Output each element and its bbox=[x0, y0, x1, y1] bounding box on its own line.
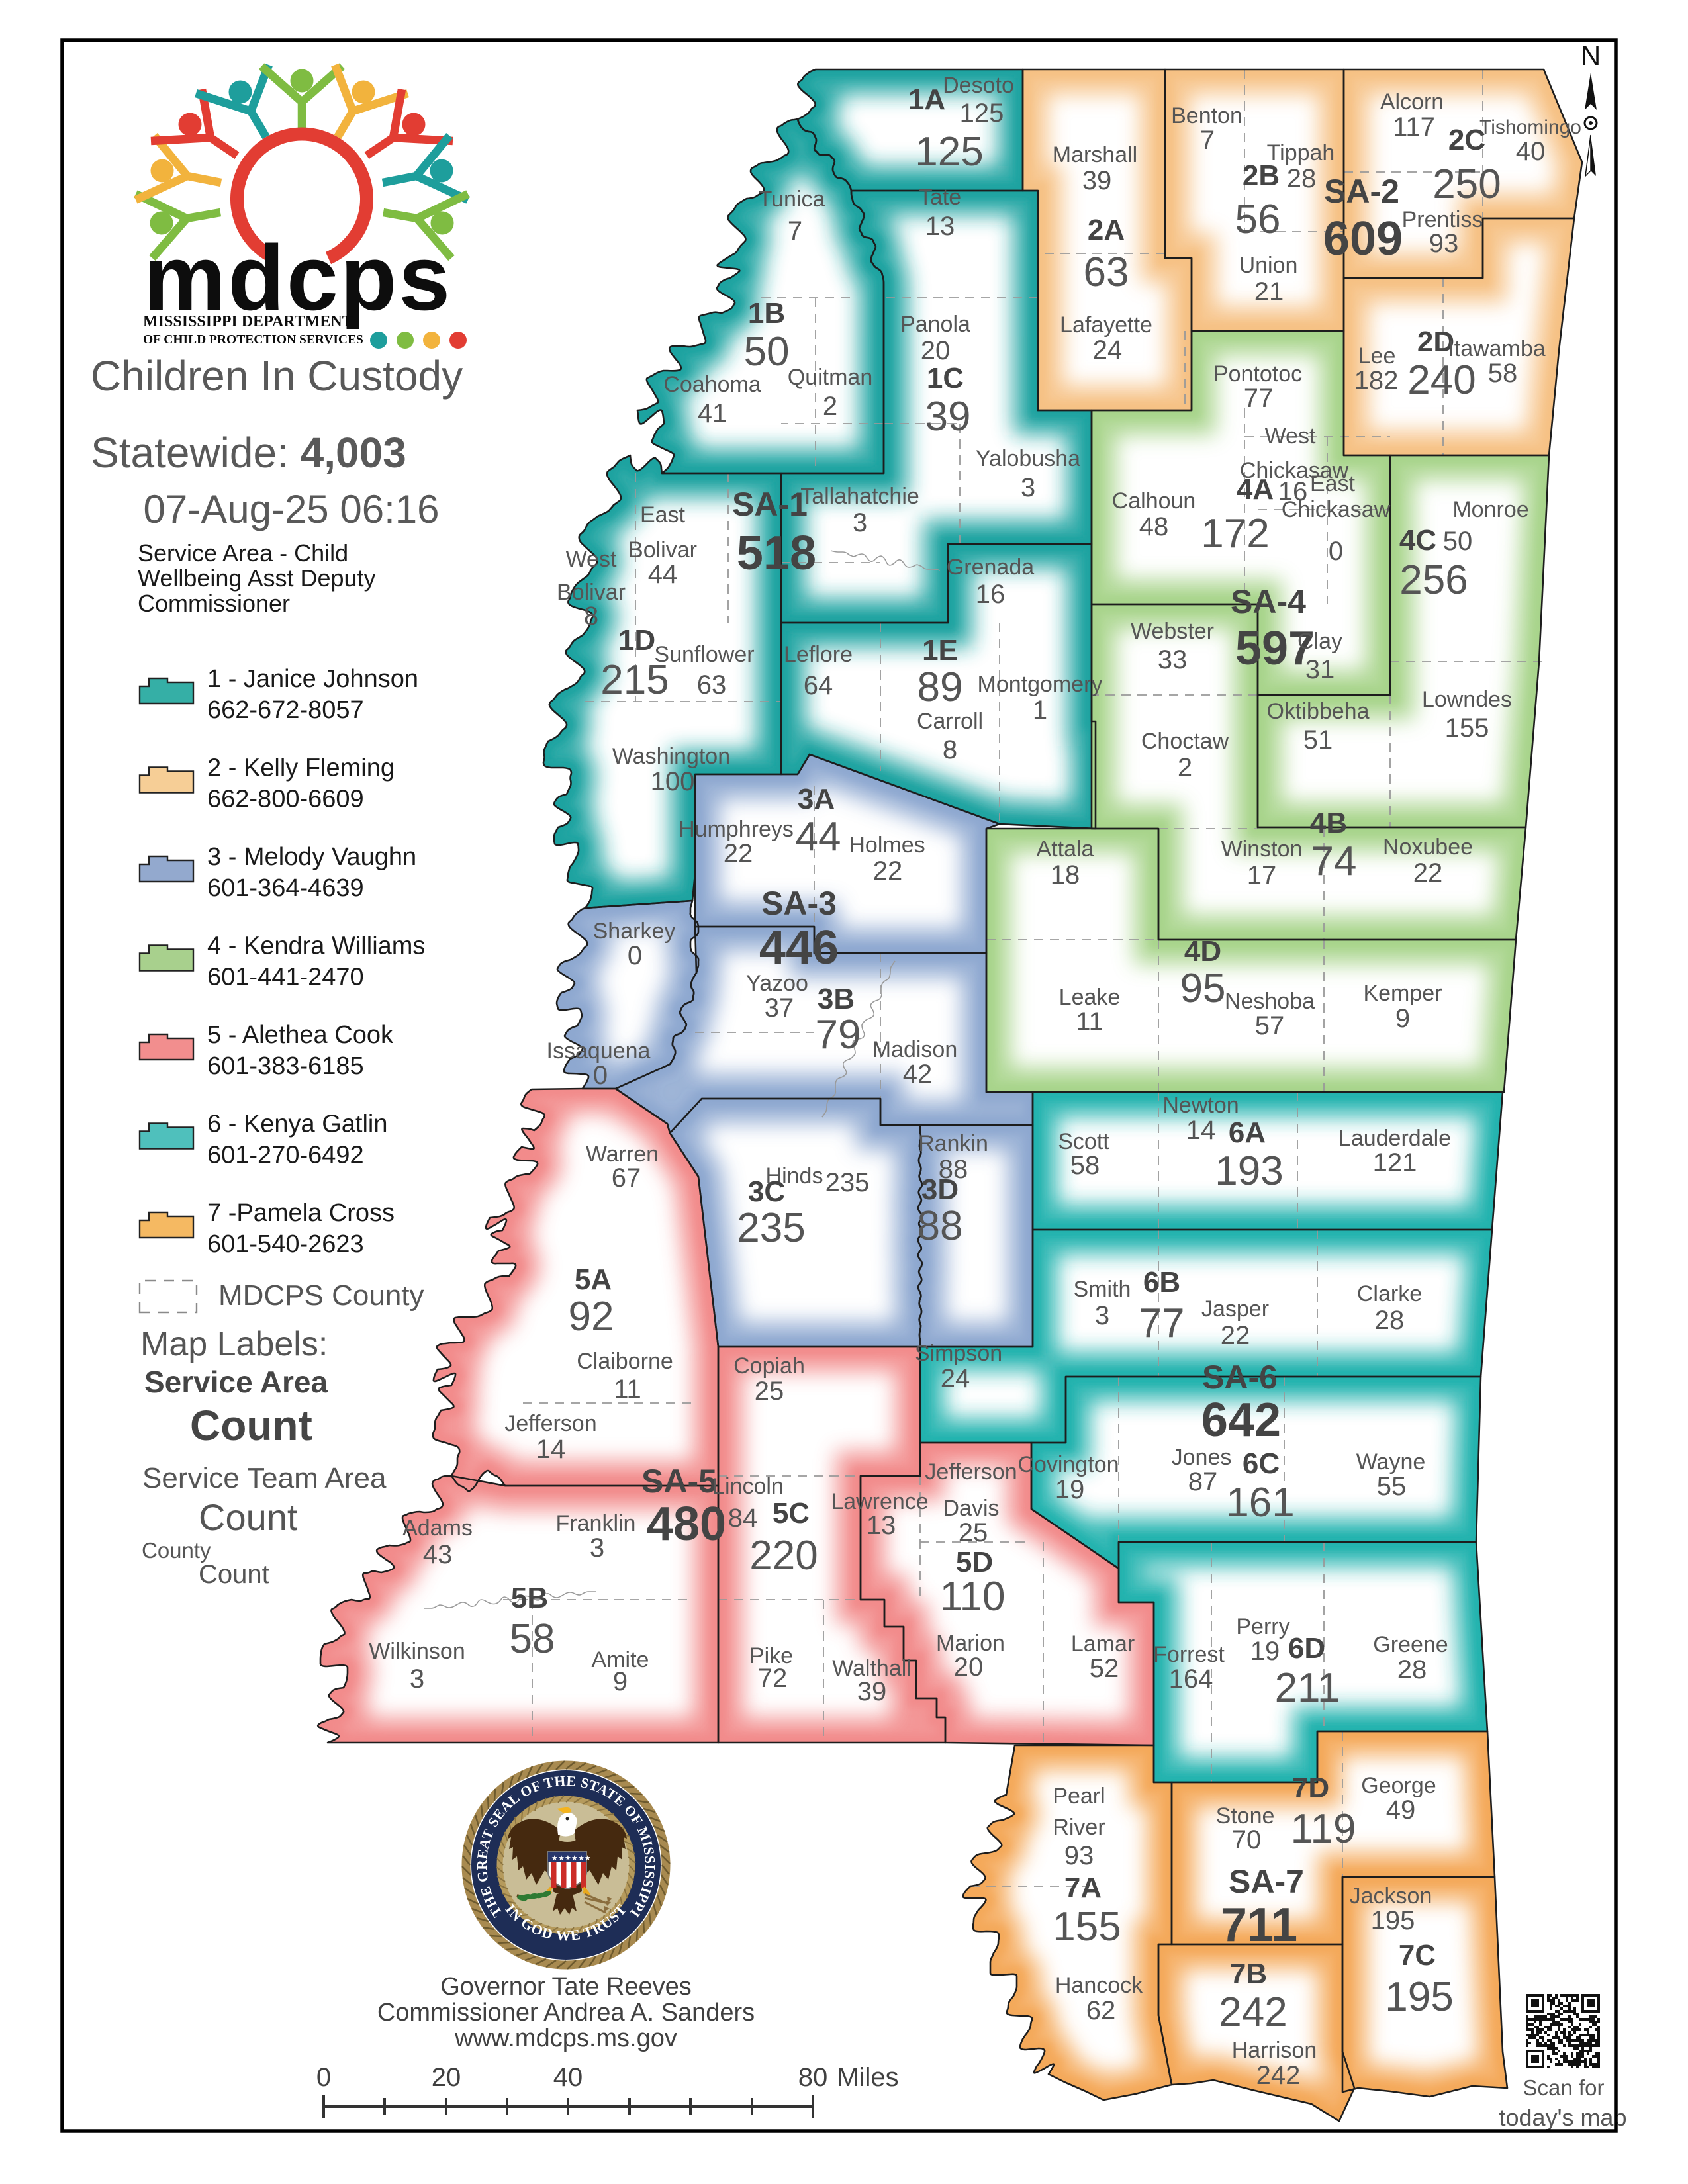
svg-text:9: 9 bbox=[613, 1667, 628, 1696]
svg-text:Tunica: Tunica bbox=[759, 187, 825, 212]
svg-text:Neshoba: Neshoba bbox=[1225, 989, 1315, 1014]
svg-text:Monroe: Monroe bbox=[1452, 497, 1528, 522]
svg-text:8: 8 bbox=[584, 602, 598, 631]
svg-text:1D: 1D bbox=[618, 624, 655, 657]
svg-text:601-441-2470: 601-441-2470 bbox=[207, 964, 364, 991]
svg-text:20: 20 bbox=[432, 2063, 461, 2092]
svg-text:★: ★ bbox=[558, 1854, 565, 1862]
svg-text:7C: 7C bbox=[1399, 1939, 1436, 1972]
svg-text:Coahoma: Coahoma bbox=[663, 372, 761, 397]
svg-text:119: 119 bbox=[1291, 1806, 1356, 1852]
svg-text:Benton: Benton bbox=[1171, 103, 1243, 128]
svg-text:Clarke: Clarke bbox=[1357, 1281, 1422, 1306]
svg-text:Lee: Lee bbox=[1358, 343, 1396, 369]
svg-text:11: 11 bbox=[614, 1375, 641, 1404]
svg-text:9: 9 bbox=[1395, 1004, 1410, 1033]
svg-text:250: 250 bbox=[1432, 161, 1501, 207]
svg-text:19: 19 bbox=[1055, 1475, 1085, 1504]
svg-text:33: 33 bbox=[1158, 645, 1188, 674]
svg-text:43: 43 bbox=[423, 1540, 453, 1569]
svg-text:19: 19 bbox=[1250, 1637, 1280, 1666]
svg-text:16: 16 bbox=[976, 580, 1006, 609]
svg-text:Commissioner Andrea A. Sanders: Commissioner Andrea A. Sanders bbox=[377, 1999, 755, 2026]
svg-text:Davis: Davis bbox=[943, 1496, 999, 1521]
svg-text:220: 220 bbox=[749, 1533, 818, 1578]
svg-text:155: 155 bbox=[1053, 1904, 1121, 1950]
svg-text:N: N bbox=[1581, 40, 1601, 71]
svg-text:Sharkey: Sharkey bbox=[593, 919, 676, 944]
svg-text:Perry: Perry bbox=[1236, 1614, 1289, 1639]
svg-text:Hancock: Hancock bbox=[1055, 1973, 1143, 1998]
svg-text:25: 25 bbox=[755, 1377, 784, 1406]
svg-text:63: 63 bbox=[1084, 250, 1129, 295]
svg-text:0: 0 bbox=[316, 2063, 331, 2092]
svg-text:Service Area: Service Area bbox=[144, 1365, 328, 1399]
svg-text:711: 711 bbox=[1221, 1899, 1297, 1952]
svg-text:235: 235 bbox=[825, 1168, 870, 1197]
svg-text:Winston: Winston bbox=[1221, 837, 1303, 862]
svg-text:49: 49 bbox=[1386, 1796, 1416, 1825]
svg-text:11: 11 bbox=[1076, 1007, 1103, 1036]
svg-text:Scan for: Scan for bbox=[1523, 2075, 1605, 2100]
svg-text:195: 195 bbox=[1385, 1974, 1453, 2020]
svg-text:Union: Union bbox=[1239, 253, 1298, 278]
svg-text:110: 110 bbox=[940, 1574, 1006, 1619]
svg-text:Sunflower: Sunflower bbox=[654, 642, 754, 667]
svg-text:07-Aug-25 06:16: 07-Aug-25 06:16 bbox=[143, 487, 439, 531]
svg-text:5B: 5B bbox=[511, 1582, 548, 1614]
svg-text:★: ★ bbox=[565, 1854, 571, 1862]
svg-text:Adams: Adams bbox=[402, 1516, 473, 1541]
svg-text:Smith: Smith bbox=[1074, 1277, 1131, 1302]
svg-text:242: 242 bbox=[1256, 2061, 1301, 2090]
svg-text:Kemper: Kemper bbox=[1363, 981, 1442, 1006]
svg-text:SA-3: SA-3 bbox=[761, 885, 837, 922]
svg-text:Washington: Washington bbox=[612, 744, 730, 769]
svg-text:3B: 3B bbox=[818, 983, 855, 1015]
svg-text:74: 74 bbox=[1311, 839, 1357, 884]
svg-text:Jones: Jones bbox=[1172, 1445, 1232, 1470]
svg-text:28: 28 bbox=[1287, 164, 1317, 193]
svg-text:193: 193 bbox=[1215, 1148, 1283, 1194]
svg-text:East: East bbox=[1310, 471, 1356, 496]
svg-text:Governor Tate Reeves: Governor Tate Reeves bbox=[440, 1973, 692, 2001]
svg-text:662-672-8057: 662-672-8057 bbox=[207, 696, 364, 724]
svg-text:62: 62 bbox=[1086, 1996, 1116, 2025]
svg-text:Quitman: Quitman bbox=[788, 365, 873, 390]
svg-text:Franklin: Franklin bbox=[556, 1511, 636, 1536]
svg-text:★: ★ bbox=[551, 1854, 558, 1862]
svg-text:Chickasaw: Chickasaw bbox=[1282, 497, 1391, 522]
svg-text:25: 25 bbox=[959, 1518, 988, 1547]
svg-text:today's map: today's map bbox=[1499, 2104, 1627, 2131]
svg-text:84: 84 bbox=[728, 1504, 758, 1533]
svg-text:MDCPS County: MDCPS County bbox=[218, 1279, 424, 1312]
svg-text:3: 3 bbox=[410, 1664, 424, 1694]
svg-text:39: 39 bbox=[857, 1677, 887, 1706]
svg-text:Lamar: Lamar bbox=[1071, 1631, 1135, 1657]
svg-text:601-383-6185: 601-383-6185 bbox=[207, 1052, 364, 1080]
svg-text:Tate: Tate bbox=[919, 185, 961, 210]
svg-text:Jefferson: Jefferson bbox=[504, 1411, 596, 1436]
svg-text:41: 41 bbox=[698, 399, 727, 428]
svg-text:22: 22 bbox=[1413, 858, 1443, 887]
svg-text:240: 240 bbox=[1407, 357, 1476, 403]
svg-text:20: 20 bbox=[921, 336, 951, 365]
svg-text:446: 446 bbox=[759, 921, 839, 974]
svg-text:Jasper: Jasper bbox=[1201, 1297, 1269, 1322]
svg-text:235: 235 bbox=[737, 1205, 805, 1251]
svg-text:39: 39 bbox=[925, 394, 971, 439]
svg-text:1B: 1B bbox=[748, 297, 785, 330]
svg-text:SA-4: SA-4 bbox=[1231, 583, 1306, 620]
svg-text:SA-6: SA-6 bbox=[1202, 1359, 1278, 1396]
svg-text:125: 125 bbox=[915, 129, 983, 175]
svg-text:58: 58 bbox=[1070, 1151, 1100, 1180]
svg-text:0: 0 bbox=[628, 941, 642, 970]
svg-text:West: West bbox=[566, 547, 617, 572]
svg-text:40: 40 bbox=[553, 2063, 583, 2092]
svg-text:6A: 6A bbox=[1229, 1116, 1266, 1149]
svg-text:OF CHILD PROTECTION SERVICES: OF CHILD PROTECTION SERVICES bbox=[143, 333, 363, 347]
svg-text:93: 93 bbox=[1429, 229, 1459, 258]
svg-text:28: 28 bbox=[1375, 1306, 1405, 1335]
svg-text:Service Team Area: Service Team Area bbox=[142, 1462, 387, 1494]
svg-text:Grenada: Grenada bbox=[947, 555, 1034, 580]
svg-text:Bolivar: Bolivar bbox=[628, 537, 697, 563]
svg-text:2 - Kelly Fleming: 2 - Kelly Fleming bbox=[207, 754, 395, 782]
svg-text:0: 0 bbox=[593, 1061, 608, 1090]
svg-text:242: 242 bbox=[1219, 1989, 1287, 2035]
svg-text:44: 44 bbox=[648, 560, 678, 589]
svg-text:58: 58 bbox=[1488, 359, 1518, 388]
svg-text:MISSISSIPPI DEPARTMENT: MISSISSIPPI DEPARTMENT bbox=[143, 313, 353, 330]
svg-text:6 - Kenya Gatlin: 6 - Kenya Gatlin bbox=[207, 1111, 387, 1138]
svg-text:4B: 4B bbox=[1310, 807, 1347, 839]
svg-text:2: 2 bbox=[823, 392, 837, 421]
svg-text:4C: 4C bbox=[1399, 524, 1436, 557]
svg-text:Attala: Attala bbox=[1037, 837, 1094, 862]
svg-text:182: 182 bbox=[1354, 366, 1399, 395]
svg-text:63: 63 bbox=[697, 670, 727, 700]
svg-text:Leake: Leake bbox=[1059, 985, 1121, 1010]
svg-text:Leflore: Leflore bbox=[784, 642, 853, 667]
svg-text:77: 77 bbox=[1244, 384, 1274, 413]
svg-text:18: 18 bbox=[1051, 860, 1080, 889]
svg-text:3: 3 bbox=[1095, 1301, 1109, 1330]
svg-text:Lafayette: Lafayette bbox=[1060, 312, 1152, 338]
svg-text:3D: 3D bbox=[921, 1173, 959, 1206]
svg-text:44: 44 bbox=[796, 814, 841, 860]
svg-text:51: 51 bbox=[1303, 725, 1333, 754]
svg-text:Rankin: Rankin bbox=[918, 1131, 988, 1156]
svg-text:93: 93 bbox=[1064, 1841, 1094, 1870]
svg-text:★: ★ bbox=[585, 1854, 591, 1862]
svg-text:7 -Pamela Cross: 7 -Pamela Cross bbox=[207, 1199, 395, 1227]
svg-text:Tishomingo: Tishomingo bbox=[1479, 116, 1581, 138]
svg-text:3: 3 bbox=[1021, 473, 1035, 502]
svg-text:Forrest: Forrest bbox=[1153, 1642, 1225, 1667]
svg-text:Statewide: 4,003: Statewide: 4,003 bbox=[91, 429, 406, 477]
svg-text:125: 125 bbox=[960, 99, 1004, 128]
svg-text:SA-5: SA-5 bbox=[641, 1463, 717, 1500]
svg-text:Count: Count bbox=[199, 1496, 298, 1538]
svg-text:Children In Custody: Children In Custody bbox=[91, 352, 463, 400]
svg-text:River: River bbox=[1053, 1815, 1105, 1840]
svg-text:Miles: Miles bbox=[837, 2063, 898, 2092]
svg-text:1: 1 bbox=[1033, 696, 1047, 725]
svg-text:Newton: Newton bbox=[1162, 1093, 1239, 1118]
svg-text:95: 95 bbox=[1180, 966, 1226, 1011]
svg-text:211: 211 bbox=[1275, 1665, 1340, 1711]
svg-text:Wilkinson: Wilkinson bbox=[369, 1639, 465, 1664]
svg-text:37: 37 bbox=[765, 993, 794, 1023]
svg-text:121: 121 bbox=[1373, 1148, 1417, 1177]
svg-text:Commissioner: Commissioner bbox=[138, 590, 290, 617]
svg-text:56: 56 bbox=[1235, 197, 1281, 242]
svg-text:77: 77 bbox=[1139, 1300, 1185, 1346]
svg-text:21: 21 bbox=[1254, 277, 1284, 306]
svg-text:3: 3 bbox=[590, 1533, 604, 1563]
svg-text:Claiborne: Claiborne bbox=[577, 1349, 673, 1374]
svg-text:642: 642 bbox=[1201, 1394, 1281, 1447]
svg-text:Oktibbeha: Oktibbeha bbox=[1267, 699, 1370, 724]
svg-text:3: 3 bbox=[853, 508, 867, 537]
svg-text:Simpson: Simpson bbox=[915, 1341, 1002, 1366]
svg-text:58: 58 bbox=[510, 1616, 555, 1662]
svg-text:2A: 2A bbox=[1088, 214, 1125, 246]
svg-text:5C: 5C bbox=[773, 1497, 810, 1529]
svg-text:72: 72 bbox=[758, 1664, 788, 1693]
svg-text:89: 89 bbox=[917, 664, 963, 710]
svg-text:4A: 4A bbox=[1237, 473, 1274, 506]
svg-text:64: 64 bbox=[804, 671, 833, 700]
svg-text:Count: Count bbox=[199, 1560, 269, 1589]
svg-text:480: 480 bbox=[647, 1498, 726, 1551]
svg-text:31: 31 bbox=[1305, 655, 1335, 684]
svg-text:Copiah: Copiah bbox=[733, 1353, 805, 1379]
svg-text:13: 13 bbox=[925, 212, 955, 241]
svg-text:24: 24 bbox=[941, 1364, 970, 1393]
svg-text:609: 609 bbox=[1323, 212, 1403, 265]
svg-text:5A: 5A bbox=[575, 1263, 612, 1296]
svg-text:6B: 6B bbox=[1143, 1266, 1180, 1298]
svg-text:Calhoun: Calhoun bbox=[1112, 488, 1196, 514]
svg-text:195: 195 bbox=[1371, 1906, 1415, 1935]
svg-text:Panola: Panola bbox=[900, 312, 970, 337]
svg-text:Yazoo: Yazoo bbox=[746, 971, 808, 996]
svg-text:164: 164 bbox=[1169, 1664, 1213, 1694]
svg-text:Tallahatchie: Tallahatchie bbox=[800, 484, 919, 509]
svg-text:Holmes: Holmes bbox=[849, 833, 925, 858]
svg-text:117: 117 bbox=[1393, 113, 1435, 142]
svg-text:55: 55 bbox=[1377, 1472, 1407, 1501]
svg-text:Noxubee: Noxubee bbox=[1383, 835, 1473, 860]
svg-text:80: 80 bbox=[798, 2063, 828, 2092]
svg-text:24: 24 bbox=[1093, 336, 1123, 365]
svg-text:Lauderdale: Lauderdale bbox=[1338, 1126, 1451, 1151]
svg-text:8: 8 bbox=[943, 735, 957, 764]
svg-text:518: 518 bbox=[737, 527, 816, 580]
svg-text:7B: 7B bbox=[1230, 1958, 1267, 1990]
svg-text:79: 79 bbox=[816, 1012, 861, 1058]
svg-text:20: 20 bbox=[954, 1653, 984, 1682]
svg-text:601-364-4639: 601-364-4639 bbox=[207, 874, 364, 902]
svg-text:7A: 7A bbox=[1064, 1872, 1102, 1904]
svg-text:Webster: Webster bbox=[1131, 619, 1214, 644]
svg-text:172: 172 bbox=[1201, 511, 1269, 557]
svg-text:Itawamba: Itawamba bbox=[1448, 336, 1545, 361]
svg-text:87: 87 bbox=[1188, 1467, 1218, 1496]
svg-text:1E: 1E bbox=[922, 634, 958, 666]
svg-text:Yalobusha: Yalobusha bbox=[976, 446, 1080, 471]
svg-text:Choctaw: Choctaw bbox=[1141, 729, 1229, 754]
svg-text:28: 28 bbox=[1397, 1655, 1427, 1684]
svg-text:2: 2 bbox=[1178, 753, 1192, 782]
svg-text:West: West bbox=[1265, 424, 1316, 449]
svg-text:2B: 2B bbox=[1243, 159, 1280, 192]
svg-text:Service Area - Child: Service Area - Child bbox=[138, 539, 348, 567]
svg-text:52: 52 bbox=[1090, 1654, 1119, 1683]
svg-text:Humphreys: Humphreys bbox=[679, 817, 794, 842]
svg-text:17: 17 bbox=[1247, 861, 1277, 890]
svg-text:42: 42 bbox=[903, 1060, 933, 1089]
svg-text:★: ★ bbox=[578, 1854, 585, 1862]
svg-text:Issaquena: Issaquena bbox=[547, 1038, 651, 1064]
svg-text:50: 50 bbox=[1443, 527, 1473, 556]
svg-text:Pearl: Pearl bbox=[1053, 1784, 1105, 1809]
svg-text:Wellbeing Asst Deputy: Wellbeing Asst Deputy bbox=[138, 565, 376, 592]
svg-text:161: 161 bbox=[1226, 1480, 1294, 1525]
svg-text:1 - Janice Johnson: 1 - Janice Johnson bbox=[207, 665, 418, 693]
svg-text:3C: 3C bbox=[748, 1175, 785, 1208]
svg-text:Alcorn: Alcorn bbox=[1380, 89, 1444, 114]
svg-text:Clay: Clay bbox=[1297, 629, 1342, 654]
svg-text:39: 39 bbox=[1082, 166, 1112, 195]
svg-text:Marshall: Marshall bbox=[1053, 142, 1137, 167]
svg-text:57: 57 bbox=[1255, 1011, 1285, 1040]
svg-text:601-540-2623: 601-540-2623 bbox=[207, 1230, 364, 1258]
svg-text:4D: 4D bbox=[1184, 935, 1221, 968]
svg-text:SA-2: SA-2 bbox=[1324, 173, 1399, 210]
svg-text:601-270-6492: 601-270-6492 bbox=[207, 1142, 364, 1169]
svg-text:3 - Melody Vaughn: 3 - Melody Vaughn bbox=[207, 843, 416, 871]
svg-text:155: 155 bbox=[1445, 713, 1489, 743]
svg-text:50: 50 bbox=[744, 329, 790, 375]
svg-text:88: 88 bbox=[917, 1203, 963, 1249]
svg-text:Greene: Greene bbox=[1373, 1632, 1448, 1657]
svg-text:Harrison: Harrison bbox=[1232, 2038, 1317, 2063]
svg-text:Covington: Covington bbox=[1017, 1452, 1119, 1477]
svg-text:County: County bbox=[142, 1538, 211, 1563]
svg-text:48: 48 bbox=[1139, 512, 1169, 541]
svg-text:1C: 1C bbox=[927, 362, 964, 394]
svg-text:4 - Kendra Williams: 4 - Kendra Williams bbox=[207, 933, 425, 960]
svg-text:Pontotoc: Pontotoc bbox=[1213, 361, 1302, 387]
svg-text:SA-7: SA-7 bbox=[1229, 1863, 1304, 1900]
svg-text:13: 13 bbox=[867, 1511, 896, 1540]
svg-text:Jefferson: Jefferson bbox=[925, 1459, 1017, 1484]
svg-text:Lowndes: Lowndes bbox=[1422, 687, 1512, 712]
svg-text:22: 22 bbox=[873, 856, 903, 886]
svg-text:www.mdcps.ms.gov: www.mdcps.ms.gov bbox=[454, 2025, 677, 2052]
svg-text:92: 92 bbox=[569, 1294, 614, 1340]
svg-text:Count: Count bbox=[190, 1402, 312, 1449]
svg-text:Desoto: Desoto bbox=[943, 73, 1014, 98]
svg-text:22: 22 bbox=[724, 839, 753, 868]
svg-text:7: 7 bbox=[1200, 126, 1215, 155]
svg-text:George: George bbox=[1361, 1773, 1436, 1798]
svg-text:5 - Alethea Cook: 5 - Alethea Cook bbox=[207, 1021, 394, 1049]
svg-text:0: 0 bbox=[1329, 537, 1343, 566]
svg-text:Montgomery: Montgomery bbox=[978, 672, 1103, 697]
svg-text:SA-1: SA-1 bbox=[732, 486, 808, 523]
svg-text:40: 40 bbox=[1516, 137, 1546, 166]
svg-text:662-800-6609: 662-800-6609 bbox=[207, 786, 364, 813]
svg-text:Lincoln: Lincoln bbox=[712, 1474, 784, 1499]
svg-text:14: 14 bbox=[1186, 1116, 1216, 1145]
svg-text:6C: 6C bbox=[1243, 1447, 1280, 1480]
svg-text:Map Labels:: Map Labels: bbox=[140, 1325, 328, 1363]
svg-text:100: 100 bbox=[651, 767, 695, 796]
svg-text:Wayne: Wayne bbox=[1356, 1449, 1426, 1475]
svg-text:Jackson: Jackson bbox=[1350, 1884, 1432, 1909]
svg-text:7D: 7D bbox=[1292, 1772, 1329, 1804]
svg-text:Carroll: Carroll bbox=[917, 709, 983, 734]
svg-text:3A: 3A bbox=[798, 783, 835, 815]
svg-text:East: East bbox=[640, 502, 686, 527]
svg-text:1A: 1A bbox=[908, 83, 945, 116]
svg-text:14: 14 bbox=[536, 1435, 566, 1464]
svg-text:70: 70 bbox=[1232, 1825, 1262, 1854]
svg-text:22: 22 bbox=[1221, 1321, 1250, 1350]
svg-text:67: 67 bbox=[612, 1163, 641, 1193]
svg-text:6D: 6D bbox=[1288, 1632, 1325, 1664]
svg-text:7: 7 bbox=[788, 216, 802, 246]
svg-text:Madison: Madison bbox=[872, 1037, 958, 1062]
svg-text:★: ★ bbox=[571, 1854, 578, 1862]
svg-text:256: 256 bbox=[1399, 557, 1468, 603]
